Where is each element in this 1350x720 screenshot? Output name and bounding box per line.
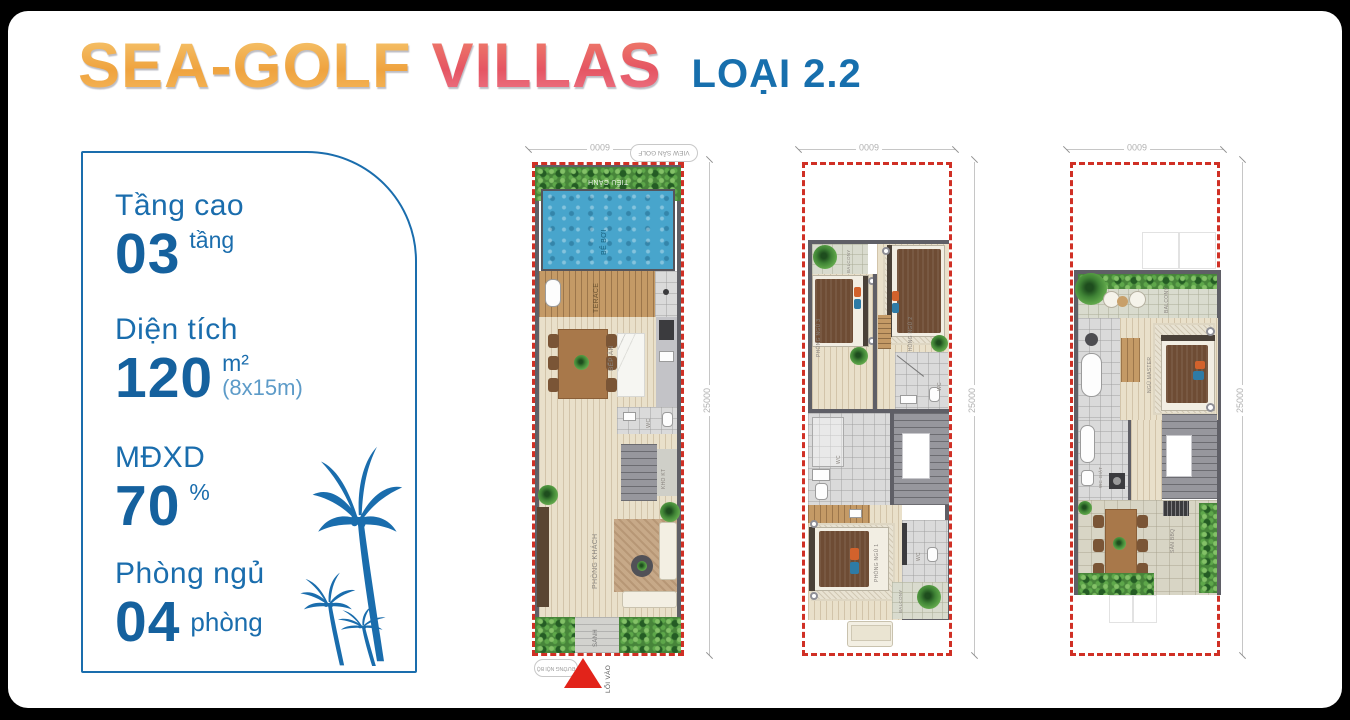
plant — [1078, 501, 1092, 515]
plant — [850, 347, 868, 365]
spec-label: MĐXD — [115, 441, 210, 475]
spec-area: Diện tích 120 m² (8x15m) — [115, 313, 303, 405]
kitchen-sink — [659, 351, 674, 362]
stair-landing — [902, 433, 930, 479]
toilet — [815, 483, 828, 500]
kitchen-island — [617, 333, 645, 397]
corridor-floor — [1131, 420, 1162, 500]
bedroom1-label: PHÒNG NGỦ 1 — [875, 540, 880, 582]
pillow — [892, 291, 899, 301]
table-plant — [637, 561, 647, 571]
table-plant — [1113, 537, 1126, 550]
toilet — [927, 547, 938, 562]
pillow — [1193, 371, 1204, 380]
lamp — [1206, 403, 1215, 412]
bedroom3-label: PHÒNG NGỦ 3 — [817, 315, 822, 357]
chair — [1093, 515, 1104, 528]
brand-title: SEA-GOLFVILLAS — [78, 35, 662, 98]
wicker-chair — [1129, 291, 1146, 308]
vanity — [902, 523, 907, 565]
bathtub — [1080, 425, 1095, 463]
chair — [1137, 539, 1148, 552]
lamp — [1206, 327, 1215, 336]
step-outline — [1109, 595, 1133, 623]
dimension-depth-label: 25000 — [967, 385, 977, 416]
lamp — [810, 592, 818, 600]
entry-garden — [619, 617, 681, 653]
roof-outline — [1179, 232, 1216, 269]
spec-density: MĐXD 70% — [115, 441, 210, 533]
bed-headboard — [863, 276, 868, 346]
spec-unit: phòng — [190, 610, 262, 635]
balcony-palm — [813, 245, 837, 269]
wc-label: WC — [837, 450, 842, 464]
storage-label: KHO KT — [662, 457, 667, 489]
floor3-outline: BALCONY NGỦ MASTER WC GIẶT — [1070, 162, 1220, 656]
spec-label: Diện tích — [115, 313, 303, 347]
laundry-label: WC GIẶT — [1099, 458, 1104, 488]
lobby-label: SẢNH — [593, 623, 599, 647]
balcony-label: BALCONY — [899, 587, 904, 613]
floor-plan-2: 6000 25000 BALCONY PHÒNG NGỦ 3 — [802, 147, 952, 712]
floor2-outline: BALCONY PHÒNG NGỦ 3 PHÒNG NGỦ 2 — [802, 162, 952, 656]
sink — [812, 469, 830, 481]
floor-plan-1: 6000 25000 VIEW SÂN GOLF TIỂU CẢNH BỂ BƠ… — [532, 147, 684, 712]
wc-label: WC — [647, 413, 653, 428]
wall-segment — [677, 165, 681, 617]
lamp — [810, 520, 818, 528]
chair — [1137, 515, 1148, 528]
floor-plan-3: 6000 25000 BALCONY — [1070, 147, 1220, 712]
swimming-pool — [541, 189, 675, 271]
spec-bedrooms: Phòng ngủ 04phòng — [115, 557, 265, 649]
view-golf-badge: VIEW SÂN GOLF — [630, 144, 698, 162]
bed-headboard — [1161, 335, 1215, 341]
stair-landing — [1166, 435, 1192, 477]
balcony-label: BALCONY — [847, 246, 852, 273]
header: SEA-GOLFVILLAS LOẠI 2.2 — [78, 35, 862, 98]
pillow — [892, 303, 899, 313]
wc-label: WC — [938, 377, 943, 391]
dining-label: BẾP ĂN — [609, 335, 616, 371]
bed-blanket — [819, 531, 869, 587]
bathtub — [1081, 353, 1102, 397]
brand-title-second: VILLAS — [432, 31, 662, 101]
bed-headboard — [809, 527, 815, 591]
storage-room — [657, 449, 677, 496]
bbq-label: SÂN BBQ — [1171, 523, 1176, 553]
dimension-depth-label: 25000 — [702, 385, 712, 416]
living-label: PHÒNG KHÁCH — [592, 529, 599, 589]
plant — [660, 502, 680, 522]
washer-door — [1113, 477, 1121, 485]
chair — [548, 334, 559, 348]
dimension-width-label: 6000 — [587, 142, 613, 152]
spec-unit: m² — [222, 353, 303, 375]
sink — [623, 412, 636, 421]
spec-panel: Tầng cao 03tầng Diện tích 120 m² (8x15m)… — [81, 151, 417, 673]
chair — [548, 378, 559, 392]
hedge — [1199, 503, 1217, 593]
wc-label: WC — [917, 547, 922, 561]
spec-unit: tầng — [189, 230, 234, 252]
entry-arrow-icon — [564, 658, 602, 688]
terrace-label: TERACE — [593, 277, 600, 313]
step-outline — [1133, 595, 1157, 623]
bbq-grill — [1163, 501, 1189, 516]
chair — [548, 356, 559, 370]
lounge-chair — [545, 279, 561, 307]
spec-note: (8x15m) — [222, 378, 303, 399]
variant-label: LOẠI 2.2 — [692, 52, 862, 97]
dimension-width-label: 6000 — [1124, 142, 1150, 152]
plant — [931, 335, 948, 352]
pillow — [1195, 361, 1205, 369]
floor1-outline: TIỂU CẢNH BỂ BƠI TERACE BẾP ĂN — [532, 162, 684, 656]
spec-value: 120 — [115, 351, 213, 405]
garden-label: TIỂU CẢNH — [535, 178, 681, 185]
pillow — [850, 548, 859, 560]
master-label: NGỦ MASTER — [1148, 347, 1153, 393]
palm-tree-icon — [335, 605, 387, 667]
planter — [1078, 573, 1154, 595]
spec-value: 04 — [115, 595, 180, 649]
brochure-card: SEA-GOLFVILLAS LOẠI 2.2 Tầng cao 03tầng … — [8, 11, 1342, 708]
stair-top — [878, 315, 891, 349]
pillow — [850, 562, 859, 574]
balcony-label: BALCONY — [1165, 289, 1170, 313]
table-plant — [574, 355, 589, 370]
pillow — [854, 299, 861, 309]
bedroom2-label: PHÒNG NGỦ 2 — [909, 315, 914, 355]
chair — [606, 378, 617, 392]
side-table — [1117, 296, 1128, 307]
entry-garden — [535, 617, 575, 653]
tv-cabinet — [537, 507, 549, 607]
stool — [1085, 333, 1098, 346]
dresser — [1121, 338, 1140, 382]
toilet — [662, 412, 673, 427]
bed-blanket — [897, 249, 941, 333]
spec-label: Phòng ngủ — [115, 557, 265, 591]
sink — [900, 395, 917, 404]
lamp — [882, 247, 890, 255]
spec-value: 03 — [115, 227, 180, 281]
laptop — [849, 509, 862, 518]
brand-title-first: SEA-GOLF — [78, 31, 412, 101]
dimension-width-label: 6000 — [856, 142, 882, 152]
balcony-palm — [917, 585, 941, 609]
staircase — [621, 444, 657, 501]
stove — [659, 320, 674, 340]
sofa — [622, 591, 677, 608]
shower-drain — [663, 289, 669, 295]
dimension-depth-label: 25000 — [1235, 385, 1245, 416]
sofa — [659, 522, 677, 580]
sofa-seat — [851, 625, 891, 641]
roof-outline — [1142, 232, 1179, 269]
wc-bottom — [902, 520, 948, 582]
spec-value: 70 — [115, 479, 180, 533]
pillow — [854, 287, 861, 297]
spec-floors: Tầng cao 03tầng — [115, 189, 244, 281]
chair — [1093, 539, 1104, 552]
plant — [538, 485, 558, 505]
toilet — [1081, 470, 1094, 486]
spec-unit: % — [189, 482, 209, 504]
entry-label: LỐI VÀO — [606, 647, 613, 693]
spec-label: Tầng cao — [115, 189, 244, 223]
pool-label: BỂ BƠI — [601, 205, 608, 255]
